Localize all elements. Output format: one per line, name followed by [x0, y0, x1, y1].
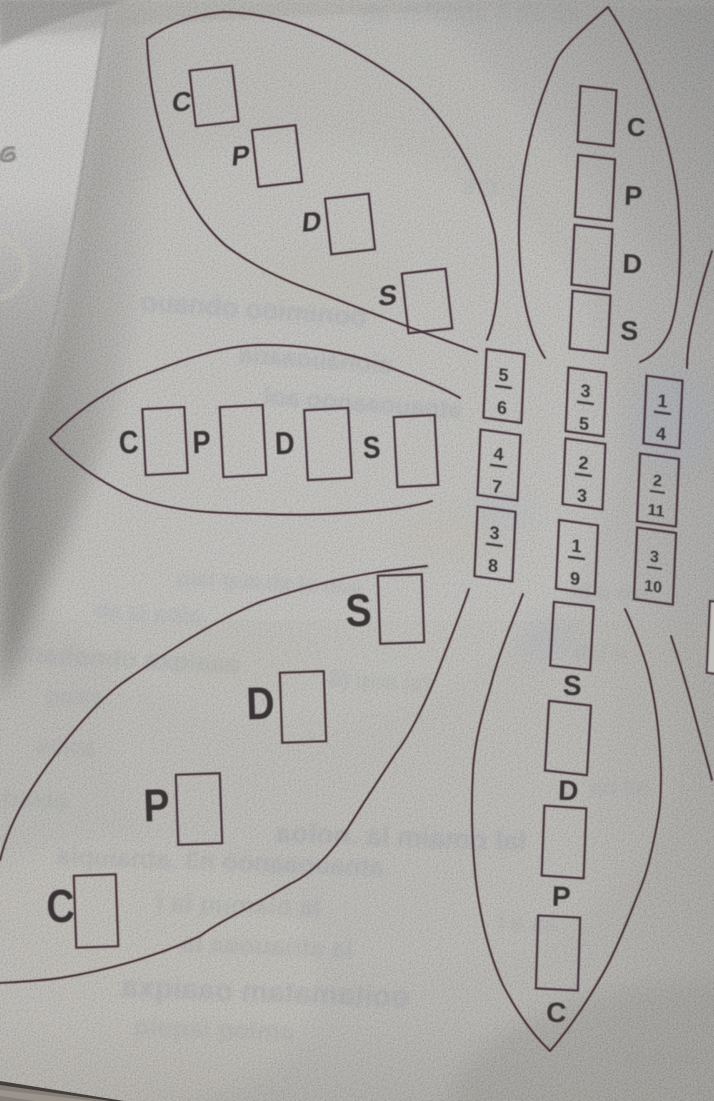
svg-text:7: 7	[492, 476, 503, 497]
svg-text:nil oa: nil oa	[591, 775, 649, 800]
svg-text:2: 2	[653, 471, 663, 490]
svg-text:S: S	[377, 278, 398, 312]
svg-text:3: 3	[489, 522, 500, 543]
svg-text:la atnauoaa la: la atnauoaa la	[180, 928, 353, 964]
svg-text:8: 8	[488, 555, 499, 576]
svg-text:1: 1	[657, 390, 668, 411]
svg-text:1: 1	[571, 535, 582, 556]
svg-text:obiodo: obiodo	[0, 784, 69, 815]
svg-text:P: P	[551, 881, 571, 913]
svg-text:4: 4	[656, 423, 667, 444]
svg-text:D: D	[245, 678, 275, 731]
svg-text:aa b la: aa b la	[625, 1045, 694, 1070]
svg-text:6: 6	[497, 397, 508, 418]
svg-text:5: 5	[498, 364, 509, 385]
svg-text:S: S	[345, 585, 373, 638]
svg-text:C: C	[45, 881, 75, 934]
svg-text:la oiamuq la i: la oiamuq la i	[156, 887, 322, 923]
svg-text:2: 2	[578, 452, 589, 473]
svg-text:C: C	[546, 997, 567, 1029]
svg-text:D: D	[558, 775, 579, 807]
svg-text:otiaq: otiaq	[46, 682, 102, 711]
svg-text:o lab: o lab	[574, 640, 625, 665]
svg-text:10: 10	[644, 577, 663, 597]
svg-text:S: S	[362, 431, 381, 466]
svg-text:11: 11	[647, 501, 665, 521]
svg-text:4: 4	[493, 443, 504, 464]
svg-text:amioq iaqoiq: amioq iaqoiq	[134, 1011, 295, 1047]
svg-text:S: S	[620, 316, 639, 347]
svg-text:aa a l: aa a l	[498, 909, 559, 938]
svg-text:(a) aup (8: (a) aup (8	[328, 665, 432, 696]
svg-text:5: 5	[579, 413, 590, 434]
svg-text:9: 9	[570, 568, 581, 589]
svg-text:D: D	[622, 249, 643, 280]
svg-text:P: P	[231, 139, 252, 172]
svg-text:S: S	[562, 670, 582, 702]
svg-text:D: D	[274, 426, 295, 462]
svg-text:3: 3	[577, 485, 588, 506]
svg-text:C: C	[118, 425, 139, 461]
svg-text:3: 3	[650, 547, 660, 566]
svg-text:P: P	[143, 780, 171, 833]
svg-text:C: C	[626, 112, 646, 143]
svg-text:aoiba: aoiba	[35, 732, 97, 761]
svg-text:D: D	[301, 205, 323, 238]
svg-text:P: P	[192, 425, 211, 461]
svg-text:P: P	[624, 181, 643, 212]
svg-text:C: C	[171, 85, 193, 118]
svg-text:3: 3	[580, 380, 591, 401]
svg-text:ab ab o abnaldo ab: ab ab o abnaldo ab	[361, 1, 578, 28]
